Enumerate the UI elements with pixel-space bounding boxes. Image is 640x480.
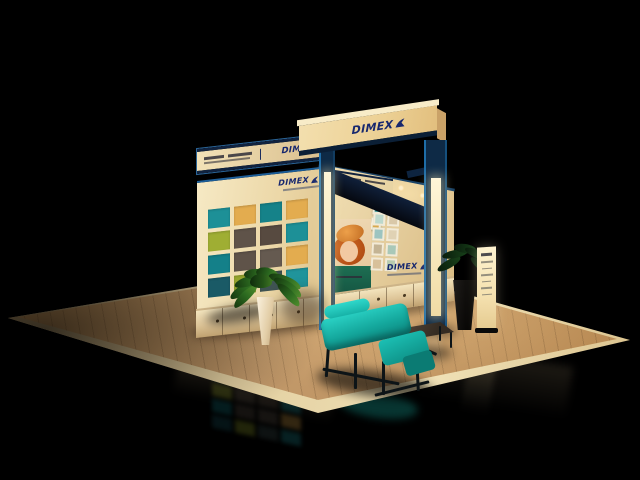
- totem-text-bar: [481, 287, 492, 289]
- banner-totem: [477, 246, 496, 331]
- photo-thumb: [385, 243, 398, 257]
- color-tile: [258, 408, 278, 425]
- photo-thumb: [372, 227, 385, 241]
- color-tile: [208, 253, 230, 275]
- color-tile: [258, 424, 278, 441]
- photo-thumb: [373, 212, 386, 226]
- poster-child-portrait: [333, 219, 371, 299]
- color-tile: [235, 403, 255, 420]
- color-tile: [260, 201, 282, 223]
- color-tile: [208, 230, 230, 252]
- totem-logo-bar: [481, 253, 492, 257]
- color-tile: [260, 224, 282, 246]
- banner-text-block: [204, 152, 252, 164]
- color-tile: [286, 221, 308, 243]
- sofa-frame-leg: [382, 361, 385, 395]
- ceiling-spot-glow: [397, 184, 405, 192]
- photo-thumb: [386, 228, 399, 242]
- booth-render-scene: DIMEX DIMEX: [0, 0, 640, 480]
- color-tile: [212, 415, 232, 432]
- totem-text-bar: [481, 274, 493, 276]
- dimex-swoosh-icon: [395, 118, 406, 129]
- color-tile: [235, 419, 255, 436]
- color-tile: [212, 399, 232, 416]
- dimex-logo-text: DIMEX: [387, 262, 418, 272]
- sofa-frame-leg: [354, 353, 357, 389]
- dimex-swoosh-icon: [311, 176, 319, 184]
- color-tile: [234, 204, 256, 226]
- color-tile: [208, 207, 230, 229]
- tagline-bar: [387, 272, 421, 276]
- back-wall-logo-block: DIMEX: [387, 262, 428, 276]
- poster-face: [340, 241, 358, 262]
- totem-base: [475, 328, 498, 333]
- poster-caption-bar: [336, 276, 362, 278]
- color-tile: [286, 198, 308, 220]
- dimex-logo: DIMEX: [352, 117, 407, 136]
- fascia-side-face: [437, 108, 446, 143]
- banner-divider: [260, 149, 261, 160]
- color-tile: [208, 276, 230, 298]
- left-panel-logo-block: DIMEX: [278, 175, 319, 192]
- vase-plant: [228, 264, 310, 350]
- dimex-logo-text: DIMEX: [352, 119, 394, 136]
- plant-leaf: [250, 274, 272, 288]
- color-tile: [286, 244, 308, 266]
- color-tile: [234, 227, 256, 249]
- fascia-sign: DIMEX: [299, 105, 437, 156]
- photo-thumb: [371, 242, 384, 256]
- totem-text-bar: [481, 261, 493, 263]
- totem-text-bar: [482, 293, 492, 295]
- dimex-logo: DIMEX: [387, 262, 428, 272]
- table-leg: [439, 326, 441, 341]
- photo-thumb: [371, 257, 384, 271]
- totem-text-bar: [482, 267, 492, 269]
- table-leg: [450, 332, 452, 348]
- totem-text-bar: [482, 280, 491, 282]
- teal-sofa: [316, 295, 436, 401]
- color-tile: [281, 429, 301, 446]
- color-tile: [281, 413, 301, 430]
